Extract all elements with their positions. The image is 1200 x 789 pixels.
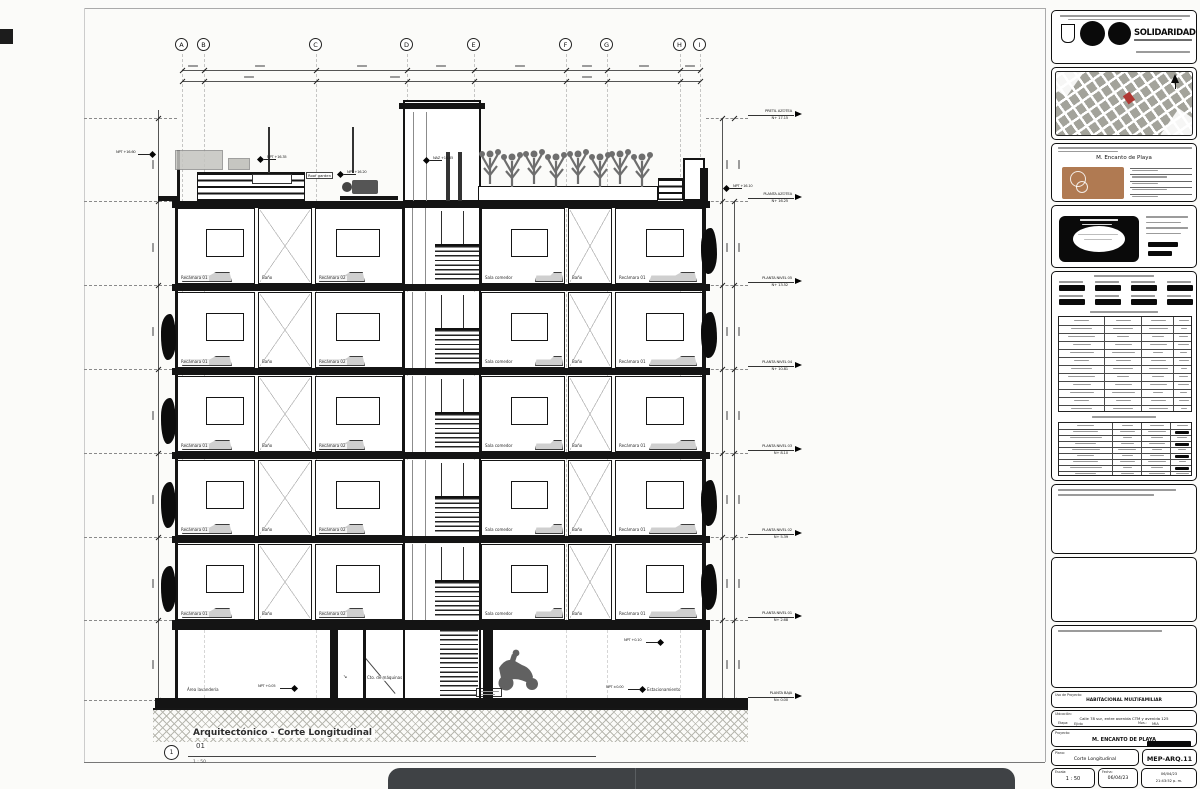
text-smudge bbox=[1131, 295, 1155, 297]
table-chip bbox=[1175, 455, 1189, 458]
elevation-tag-label: NPT +16.20 bbox=[347, 170, 367, 174]
area-chip bbox=[1059, 285, 1085, 291]
roof-plants-icon bbox=[478, 141, 660, 188]
text-smudge bbox=[1070, 437, 1102, 438]
stair-rail bbox=[463, 295, 464, 328]
text-smudge bbox=[1068, 19, 1182, 21]
text-smudge bbox=[1073, 461, 1098, 462]
text-smudge bbox=[1122, 425, 1133, 426]
text-smudge bbox=[738, 411, 740, 420]
mza-label: Mza.: bbox=[1138, 721, 1147, 725]
level-flag-icon bbox=[795, 194, 802, 200]
level-name: PLANTA BAJA bbox=[748, 691, 792, 696]
land-use-table bbox=[1058, 422, 1192, 476]
text-smudge bbox=[1153, 392, 1163, 393]
grid-bubble-G: G bbox=[600, 38, 613, 51]
text-smudge bbox=[1151, 400, 1166, 401]
text-smudge bbox=[1151, 360, 1166, 361]
elevator-rail bbox=[412, 376, 413, 452]
text-smudge bbox=[1113, 408, 1133, 409]
text-smudge bbox=[1136, 51, 1190, 53]
text-smudge bbox=[152, 579, 154, 588]
text-smudge bbox=[1146, 227, 1188, 229]
elevator-rail bbox=[425, 208, 426, 284]
text-smudge bbox=[1122, 455, 1133, 456]
room: Recámara 02 bbox=[315, 208, 403, 284]
text-smudge bbox=[1152, 336, 1165, 337]
text-smudge bbox=[726, 579, 728, 588]
room-label: Recámara 01 bbox=[618, 276, 647, 281]
text-smudge bbox=[582, 65, 592, 67]
elevation-leader bbox=[430, 160, 442, 161]
text-smudge bbox=[1179, 400, 1189, 401]
room: Recámara 02 bbox=[315, 376, 403, 452]
stair-treads bbox=[435, 498, 479, 534]
interior-wall-thick bbox=[483, 630, 493, 698]
ground-room-label: Área lavandería bbox=[186, 688, 220, 693]
table-row-line bbox=[1059, 447, 1191, 448]
bulkhead-slab bbox=[399, 103, 485, 109]
text-smudge bbox=[1152, 376, 1165, 377]
door-brace bbox=[570, 294, 610, 366]
text-smudge bbox=[1181, 368, 1187, 369]
text-smudge bbox=[357, 65, 367, 67]
window bbox=[646, 229, 684, 257]
stair-shaft bbox=[405, 460, 479, 536]
room: Recámara 01 bbox=[615, 208, 703, 284]
elevation-leader bbox=[628, 689, 640, 690]
text-smudge bbox=[1152, 449, 1161, 450]
level-line-left bbox=[84, 620, 177, 621]
level-flag-icon bbox=[795, 278, 802, 284]
window bbox=[336, 565, 380, 593]
stair-shaft bbox=[405, 208, 479, 284]
view-reference-bubble: 1 bbox=[164, 745, 179, 760]
elevation-tag-label: NAZ +16.85 bbox=[433, 156, 453, 160]
level-line-right bbox=[706, 201, 748, 202]
print-date: 06/04/23 bbox=[1142, 772, 1196, 776]
dimension-line bbox=[182, 70, 700, 71]
text-smudge bbox=[1073, 431, 1098, 432]
text-smudge bbox=[1072, 449, 1100, 450]
room-label: Sala comedor bbox=[484, 528, 513, 533]
text-smudge bbox=[1178, 344, 1189, 345]
page-edge-mark bbox=[0, 29, 13, 44]
text-smudge bbox=[1149, 328, 1168, 329]
project-label: Proyecto: bbox=[1055, 731, 1070, 735]
text-smudge bbox=[1149, 408, 1168, 409]
level-line-left bbox=[84, 537, 177, 538]
table-col-line bbox=[1173, 317, 1174, 411]
floor-slab bbox=[172, 536, 710, 543]
text-smudge bbox=[685, 65, 695, 67]
stair-shaft bbox=[405, 292, 479, 368]
level-elevation: N+ 10.81 bbox=[748, 367, 788, 372]
stair-treads bbox=[435, 582, 479, 618]
text-smudge bbox=[1180, 392, 1187, 393]
text-smudge bbox=[1151, 437, 1162, 438]
room: Baño bbox=[568, 376, 612, 452]
room: Recámara 01 bbox=[615, 460, 703, 536]
text-smudge bbox=[1071, 328, 1092, 329]
text-smudge bbox=[1073, 344, 1091, 345]
sheet-name-label: Plano: bbox=[1055, 751, 1065, 755]
window bbox=[206, 313, 244, 341]
text-smudge bbox=[479, 694, 495, 695]
floor-slab bbox=[172, 620, 710, 630]
elevation-diamond-icon bbox=[723, 185, 730, 192]
room-label: Recámara 01 bbox=[180, 444, 209, 449]
level-flag-icon bbox=[795, 446, 802, 452]
room: Recámara 02 bbox=[315, 292, 403, 368]
bed bbox=[535, 608, 563, 618]
area-chip bbox=[1095, 285, 1121, 291]
agency-header-box: SOLIDARIDAD bbox=[1051, 10, 1197, 64]
project-field-row bbox=[1130, 194, 1192, 195]
sheet-number-box: MEP-ARQ.11 bbox=[1142, 749, 1197, 766]
text-smudge bbox=[1134, 39, 1192, 41]
area-chip bbox=[1059, 299, 1085, 305]
text-smudge bbox=[255, 65, 265, 67]
project-use-row: Uso de Proyecto: HABITACIONAL MULTIFAMIL… bbox=[1051, 691, 1197, 708]
table-col-line bbox=[1104, 317, 1105, 411]
door-brace bbox=[260, 546, 310, 618]
text-smudge bbox=[1148, 461, 1166, 462]
text-smudge bbox=[1075, 443, 1096, 444]
room-label: Baño bbox=[261, 444, 273, 449]
window bbox=[336, 481, 380, 509]
room-label: Baño bbox=[261, 276, 273, 281]
grid-bubble-I: I bbox=[693, 38, 706, 51]
elevator-rail bbox=[412, 208, 413, 284]
level-flag-icon bbox=[795, 693, 802, 699]
date-label: Fecha: bbox=[1102, 770, 1112, 774]
text-smudge bbox=[1132, 176, 1167, 177]
project-field-row bbox=[1130, 187, 1192, 188]
text-smudge bbox=[1146, 233, 1181, 235]
stair-rail bbox=[463, 547, 464, 580]
balcony-blob bbox=[161, 398, 176, 444]
text-smudge bbox=[1077, 455, 1094, 456]
ground-room-label: Cto. de máquinas bbox=[366, 676, 403, 681]
text-smudge bbox=[1118, 449, 1136, 450]
bed bbox=[535, 440, 563, 450]
table-col-line bbox=[1141, 317, 1142, 411]
text-smudge bbox=[1058, 489, 1176, 491]
drawing-sheet-view: { "page":{"background":"#fbfbf9","line_c… bbox=[0, 0, 1200, 789]
room: Sala comedor bbox=[481, 208, 565, 284]
text-smudge bbox=[1167, 281, 1191, 283]
table-row-line bbox=[1059, 429, 1191, 430]
text-smudge bbox=[152, 243, 154, 252]
text-smudge bbox=[1058, 151, 1118, 152]
area-chip bbox=[1095, 299, 1121, 305]
level-name: PLANTA AZOTEA bbox=[748, 192, 792, 197]
stair-rail bbox=[441, 379, 442, 412]
foundation-slab bbox=[155, 698, 748, 708]
elevation-leader bbox=[280, 688, 292, 689]
text-smudge bbox=[188, 65, 198, 67]
door-brace bbox=[570, 462, 610, 534]
text-smudge bbox=[1120, 461, 1136, 462]
window bbox=[336, 229, 380, 257]
table-row-line bbox=[1059, 333, 1191, 334]
elevation-diamond-icon bbox=[149, 151, 156, 158]
project-display-name: M. Encanto de Playa bbox=[1052, 155, 1196, 161]
level-line-right bbox=[706, 453, 748, 454]
level-elevation: N± 0.00 bbox=[748, 698, 788, 703]
table-row-line bbox=[1059, 459, 1191, 460]
balcony-blob bbox=[701, 480, 717, 526]
text-smudge bbox=[1123, 437, 1132, 438]
text-smudge bbox=[1181, 408, 1187, 409]
elevation-tag-label: NPT +0.10 bbox=[624, 638, 641, 642]
room-label: Sala comedor bbox=[484, 612, 513, 617]
text-smudge bbox=[1112, 352, 1135, 353]
level-flag-icon bbox=[795, 111, 802, 117]
text-smudge bbox=[1070, 352, 1094, 353]
text-smudge bbox=[1181, 328, 1187, 329]
room: Recámara 01 bbox=[177, 208, 255, 284]
text-smudge bbox=[1150, 384, 1167, 385]
grid-bubble-D: D bbox=[400, 38, 413, 51]
roof-pipe bbox=[268, 127, 270, 173]
dro-stamp-box bbox=[1051, 205, 1197, 268]
text-smudge bbox=[738, 327, 740, 336]
door-brace bbox=[570, 378, 610, 450]
text-smudge bbox=[1090, 311, 1158, 313]
stair-shaft bbox=[405, 544, 479, 620]
location-row: Ubicación: Calle 78 sur, entre avenida C… bbox=[1051, 710, 1197, 727]
grid-bubble-H: H bbox=[673, 38, 686, 51]
roof-pump-base bbox=[340, 196, 398, 200]
room: Sala comedor bbox=[481, 460, 565, 536]
bed bbox=[649, 272, 697, 282]
balcony-blob bbox=[161, 566, 176, 612]
room-label: Recámara 02 bbox=[318, 444, 347, 449]
level-elevation: N+ 8.10 bbox=[748, 451, 788, 456]
area-chip bbox=[1167, 285, 1193, 291]
bed bbox=[649, 524, 697, 534]
text-smudge bbox=[1058, 630, 1162, 632]
level-flag-icon bbox=[795, 362, 802, 368]
room-label: Recámara 01 bbox=[180, 612, 209, 617]
areas-by-level-table bbox=[1058, 316, 1192, 412]
text-smudge bbox=[1177, 425, 1188, 426]
dimension-line bbox=[182, 81, 700, 82]
project-field-row bbox=[1130, 174, 1192, 175]
text-smudge bbox=[1073, 384, 1091, 385]
door-brace bbox=[570, 210, 610, 282]
level-elevation: N+ 17.15 bbox=[748, 116, 788, 121]
room: Recámara 01 bbox=[177, 292, 255, 368]
text-smudge bbox=[738, 579, 740, 588]
level-line-left bbox=[84, 369, 177, 370]
room-label: Baño bbox=[571, 444, 583, 449]
location-value: Calle 78 sur, entre avenida CTM y avenid… bbox=[1052, 716, 1196, 721]
stair-treads bbox=[440, 630, 478, 698]
text-smudge bbox=[1167, 295, 1191, 297]
text-smudge bbox=[1149, 473, 1165, 474]
stair-bulkhead bbox=[403, 100, 481, 202]
window bbox=[646, 313, 684, 341]
table-chip bbox=[1175, 443, 1189, 446]
elevator-rail bbox=[412, 460, 413, 536]
window bbox=[646, 481, 684, 509]
area-chip bbox=[1131, 299, 1157, 305]
table-row-line bbox=[1059, 405, 1191, 406]
elevator-rail bbox=[425, 460, 426, 536]
revision-chip bbox=[1147, 741, 1191, 747]
room: Recámara 02 bbox=[315, 544, 403, 620]
room-label: Baño bbox=[571, 528, 583, 533]
level-elevation: N+ 13.52 bbox=[748, 283, 788, 288]
level-flag-icon bbox=[795, 530, 802, 536]
room-label: Recámara 01 bbox=[180, 528, 209, 533]
text-smudge bbox=[152, 495, 154, 504]
text-smudge bbox=[726, 327, 728, 336]
elevation-leader bbox=[646, 642, 658, 643]
room: Recámara 02 bbox=[315, 460, 403, 536]
elevation-tag-label: NPT +16.10 bbox=[733, 184, 753, 188]
scale-value: 1 : 50 bbox=[1052, 776, 1094, 782]
elevation-tag-label: NPT +16.60 bbox=[116, 150, 136, 154]
view-title-text: Arquitectónico - Corte Longitudinal bbox=[190, 728, 375, 738]
level-elevation: N+ 5.39 bbox=[748, 535, 788, 540]
table-row-line bbox=[1059, 381, 1191, 382]
text-smudge bbox=[1151, 320, 1166, 321]
text-smudge bbox=[1121, 443, 1135, 444]
elevator-rail bbox=[412, 544, 413, 620]
room: Recámara 01 bbox=[177, 376, 255, 452]
stair-shaft bbox=[405, 376, 479, 452]
roof-pump-motor bbox=[342, 182, 352, 192]
room-label: Recámara 01 bbox=[618, 528, 647, 533]
mza-value: MIA bbox=[1152, 721, 1159, 726]
room-label: Recámara 01 bbox=[618, 444, 647, 449]
elevation-leader bbox=[344, 174, 356, 175]
table-row-line bbox=[1059, 373, 1191, 374]
room: Recámara 01 bbox=[177, 544, 255, 620]
etapa-value: Ejido bbox=[1074, 721, 1083, 726]
sheet-number-value: MEP-ARQ.11 bbox=[1143, 755, 1196, 763]
bottom-overlay-bar bbox=[388, 768, 1015, 789]
stair-rail bbox=[463, 211, 464, 244]
room: Sala comedor bbox=[481, 376, 565, 452]
table-row-line bbox=[1059, 349, 1191, 350]
table-row-line bbox=[1059, 465, 1191, 466]
level-line-left bbox=[84, 453, 177, 454]
room: Sala comedor bbox=[481, 544, 565, 620]
text-smudge bbox=[1149, 443, 1165, 444]
text-smudge bbox=[1070, 467, 1102, 468]
bed bbox=[649, 356, 697, 366]
text-smudge bbox=[1080, 219, 1118, 221]
elevation-leader bbox=[730, 188, 742, 189]
level-flag-icon bbox=[795, 613, 802, 619]
direction-arrow-icon: ↘ bbox=[343, 674, 347, 680]
text-smudge bbox=[738, 243, 740, 252]
elevation-leader bbox=[138, 154, 150, 155]
ground-room-label: Estacionamiento bbox=[646, 688, 681, 693]
notes-box-2 bbox=[1051, 557, 1197, 622]
room-label: Baño bbox=[261, 528, 273, 533]
text-smudge bbox=[1179, 360, 1189, 361]
stair-rail bbox=[463, 463, 464, 496]
window bbox=[336, 397, 380, 425]
window bbox=[511, 313, 548, 341]
elevation-diamond-icon bbox=[257, 156, 264, 163]
elevator-rail bbox=[425, 376, 426, 452]
text-smudge bbox=[1058, 147, 1192, 149]
stair-rail bbox=[441, 211, 442, 244]
text-smudge bbox=[726, 411, 728, 420]
window bbox=[511, 481, 548, 509]
table-row-line bbox=[1059, 325, 1191, 326]
grid-line bbox=[316, 630, 317, 698]
text-smudge bbox=[726, 495, 728, 504]
room-label: Baño bbox=[261, 360, 273, 365]
text-smudge bbox=[1150, 455, 1164, 456]
project-field-row bbox=[1130, 181, 1192, 182]
room-label: Recámara 02 bbox=[318, 360, 347, 365]
dim-line-right bbox=[722, 118, 723, 700]
text-smudge bbox=[152, 160, 154, 169]
text-smudge bbox=[639, 65, 649, 67]
floor-slab bbox=[172, 284, 710, 291]
elevator-rail bbox=[425, 292, 426, 368]
text-smudge bbox=[1179, 376, 1188, 377]
room: Baño bbox=[568, 460, 612, 536]
bed bbox=[649, 608, 697, 618]
table-col-line bbox=[1170, 423, 1171, 475]
table-chip bbox=[1175, 431, 1189, 434]
text-smudge bbox=[152, 327, 154, 336]
room-label: Sala comedor bbox=[484, 276, 513, 281]
text-smudge bbox=[1116, 400, 1131, 401]
elevation-diamond-icon bbox=[337, 171, 344, 178]
room: Baño bbox=[258, 376, 312, 452]
text-smudge bbox=[1153, 352, 1163, 353]
text-smudge bbox=[726, 660, 728, 669]
sheet-name-value: Corte Longitudinal bbox=[1052, 757, 1138, 762]
table-chip bbox=[1175, 467, 1189, 470]
grid-line bbox=[566, 630, 567, 698]
roof-deck-stub bbox=[158, 196, 180, 201]
window bbox=[646, 565, 684, 593]
window bbox=[206, 565, 244, 593]
elevation-tag-label: NPT ±0.00 bbox=[606, 685, 623, 689]
interior-wall bbox=[363, 630, 366, 698]
text-smudge bbox=[1178, 384, 1189, 385]
text-smudge bbox=[1149, 368, 1168, 369]
text-smudge bbox=[1146, 216, 1188, 218]
area-chip bbox=[1167, 299, 1193, 305]
stair-rail bbox=[463, 379, 464, 412]
level-line-right bbox=[706, 537, 748, 538]
level-name: PRETIL AZOTEA bbox=[748, 109, 792, 114]
text-smudge bbox=[1070, 392, 1094, 393]
round-seal-icon bbox=[1080, 21, 1105, 46]
text-smudge bbox=[738, 160, 740, 169]
text-smudge bbox=[244, 76, 254, 78]
room-label: Sala comedor bbox=[484, 360, 513, 365]
text-smudge bbox=[738, 660, 740, 669]
roof-pump-body bbox=[352, 180, 378, 194]
text-smudge bbox=[1075, 473, 1096, 474]
notes-box-1 bbox=[1051, 484, 1197, 554]
room-label: Baño bbox=[571, 360, 583, 365]
